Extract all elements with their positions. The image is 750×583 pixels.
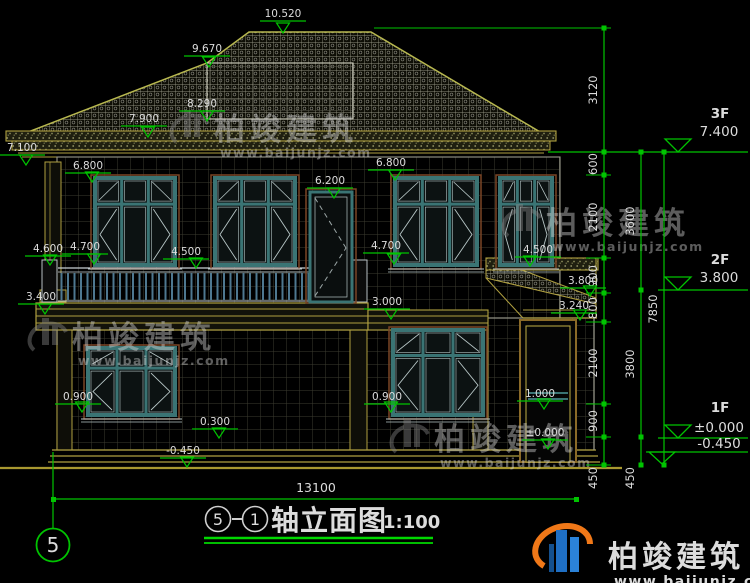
balcony-post-right [352, 260, 367, 302]
logo-building-icon2 [570, 537, 579, 572]
elevation-marker-label: 0.900 [372, 391, 402, 403]
floor-name: 2F [711, 252, 730, 268]
window [388, 175, 484, 272]
dim-chain-label: 2100 [586, 202, 600, 231]
floor-name: 3F [711, 106, 730, 122]
logo-site-text: www.baijunjz.com [614, 574, 750, 583]
elevation-marker-label: -0.450 [166, 445, 200, 457]
elevation-marker-label: 0.900 [63, 391, 93, 403]
dim-chain-label: 900 [586, 410, 600, 432]
overall-dim-label: 13100 [296, 480, 336, 495]
window [88, 175, 182, 272]
window [386, 327, 490, 422]
overall-dimension: 13100 [51, 480, 579, 502]
brand-logo: 柏竣建筑 www.baijunjz.com [535, 526, 750, 583]
dimension-chains-layer: 3120600210090080021009004503600380045078… [586, 26, 667, 489]
logo-building-icon [556, 530, 567, 572]
elevation-marker-label: 7.100 [7, 142, 37, 154]
elevation-marker-label: 3.400 [26, 291, 56, 303]
watermark-site-text: www.baijunjz.com [220, 145, 372, 160]
elevation-marker-label: 8.290 [187, 98, 217, 110]
watermark-brand-text: 柏竣建筑 [546, 206, 690, 242]
level-triangle-icon [665, 425, 691, 438]
floor-level: 1F±0.000 [658, 400, 748, 438]
elevation-marker-label: 6.800 [376, 157, 406, 169]
elevation-marker-label: 3.000 [372, 296, 402, 308]
dim-chain: 312060021009008002100900450 [586, 26, 611, 489]
dim-chain-label: 2100 [586, 348, 600, 377]
floor-elevation: 3.800 [700, 270, 739, 286]
drawing-title: 5 1 轴立面图 1:100 [204, 504, 440, 543]
floor-level: 3F7.400 [548, 106, 748, 152]
axis-bubble-label: 5 [47, 533, 60, 557]
pilaster-1f-middle [350, 330, 367, 450]
elevation-marker-label: 6.200 [315, 175, 345, 187]
watermark-brand-text: 柏竣建筑 [72, 320, 216, 356]
elevation-drawing: 柏竣建筑www.baijunjz.com柏竣建筑www.baijunjz.com… [0, 0, 750, 583]
elevation-marker-label: 9.670 [192, 43, 222, 55]
elevation-marker-label: 4.700 [371, 240, 401, 252]
cad-elevation-screenshot: 柏竣建筑www.baijunjz.com柏竣建筑www.baijunjz.com… [0, 0, 750, 583]
dim-chain-label: 3600 [623, 206, 637, 235]
elevation-marker-label: 4.500 [171, 246, 201, 258]
elevation-marker-label: 4.600 [33, 243, 63, 255]
elevation-marker: 10.520 [260, 8, 306, 33]
elevation-marker-label: ±0.000 [526, 427, 565, 439]
logo-building-icon3 [549, 544, 554, 572]
elevation-marker-label: 4.700 [70, 241, 100, 253]
level-triangle-icon [649, 452, 675, 464]
balcony-balusters [58, 273, 352, 300]
attic-dormer-wall [207, 63, 353, 119]
elevation-marker-label: 0.300 [200, 416, 230, 428]
floor-level: -0.450 [646, 436, 748, 464]
dim-chain-label: 7850 [646, 294, 660, 323]
floor-elevation: ±0.000 [694, 420, 744, 436]
title-text: 轴立面图 [271, 504, 387, 537]
dim-chain-label: 450 [586, 467, 600, 489]
dim-chain-label: 3120 [586, 75, 600, 104]
floor-elevation: -0.450 [697, 436, 741, 452]
dim-chain-label: 450 [623, 467, 637, 489]
elevation-marker-label: 1.000 [525, 388, 555, 400]
logo-brand-text: 柏竣建筑 [608, 540, 744, 575]
title-axis-start: 5 [213, 510, 223, 529]
elevation-marker-label: 4.500 [523, 244, 553, 256]
pilaster-1f-left [57, 330, 72, 450]
dim-chain-label: 3800 [623, 349, 637, 378]
dim-chain: 7850 [646, 150, 667, 468]
level-triangle-icon [665, 277, 691, 290]
title-axis-end: 1 [250, 510, 260, 529]
elevation-marker-label: 3.800 [568, 275, 598, 287]
elevation-marker-label: 7.900 [129, 113, 159, 125]
window [208, 175, 302, 272]
elevation-marker-label: 10.520 [265, 8, 302, 20]
level-triangle-icon [665, 139, 691, 152]
watermark-site-text: www.baijunjz.com [552, 239, 704, 254]
floor-level: 2F3.800 [658, 252, 748, 290]
floor-elevation: 7.400 [700, 124, 739, 140]
dim-chain-label: 600 [586, 153, 600, 175]
elevation-marker-label: 6.800 [73, 160, 103, 172]
balcony-door [306, 189, 356, 303]
elevation-marker: -0.450 [160, 445, 206, 467]
watermark-site-text: www.baijunjz.com [440, 455, 592, 470]
title-scale: 1:100 [383, 512, 440, 533]
watermark-brand-text: 柏竣建筑 [214, 112, 358, 148]
dim-chain: 36003800450 [623, 150, 644, 489]
watermark-site-text: www.baijunjz.com [78, 353, 230, 368]
floor-name: 1F [711, 400, 730, 416]
